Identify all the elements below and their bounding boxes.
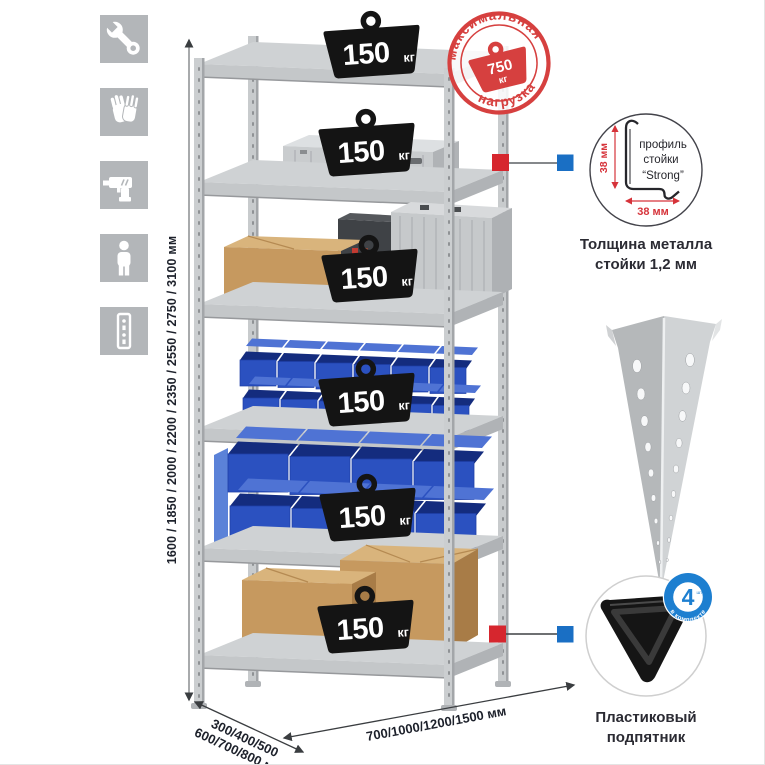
rack-illustration: 1600 / 1850 / 2000 / 2200 / 2350 / 2550 … — [0, 0, 765, 765]
svg-text:150: 150 — [340, 261, 389, 296]
callout-red-marker — [489, 626, 506, 643]
svg-text:кг: кг — [399, 513, 411, 528]
svg-text:штуки: штуки — [697, 590, 710, 595]
svg-text:кг: кг — [398, 398, 410, 413]
width-label: 700/1000/1200/1500 мм — [365, 703, 507, 744]
profile-caption: Толщина металла стойки 1,2 мм — [551, 235, 741, 275]
svg-text:кг: кг — [403, 50, 415, 65]
svg-text:150: 150 — [342, 37, 391, 72]
callout-red-marker — [492, 154, 509, 171]
svg-text:профиль: профиль — [639, 139, 687, 151]
svg-text:кг: кг — [398, 148, 410, 163]
svg-text:150: 150 — [337, 135, 386, 170]
post-profile-detail: 38 мм 38 мм профиль стойки “Strong” — [590, 114, 702, 226]
corner-post-figure — [606, 316, 722, 592]
svg-text:4: 4 — [682, 584, 695, 610]
weight-badge-icon: 150 кг — [322, 10, 422, 79]
svg-text:“Strong”: “Strong” — [642, 170, 684, 182]
foot-callout — [489, 626, 574, 643]
height-dimension: 1600 / 1850 / 2000 / 2200 / 2350 / 2550 … — [165, 40, 189, 700]
plastic-foot-detail: 4 штуки в комплекте — [586, 572, 713, 696]
weight-badge-icon: 150 кг — [317, 108, 417, 177]
profile-callout — [492, 154, 574, 171]
height-label: 1600 / 1850 / 2000 / 2200 / 2350 / 2550 … — [165, 236, 179, 565]
svg-text:150: 150 — [336, 612, 385, 647]
svg-text:стойки: стойки — [643, 154, 678, 166]
width-dimension: 700/1000/1200/1500 мм — [284, 685, 574, 744]
shelving-infographic: 1600 / 1850 / 2000 / 2200 / 2350 / 2550 … — [0, 0, 765, 765]
svg-text:кг: кг — [401, 274, 413, 289]
profile-horizontal-dim: 38 мм — [637, 206, 669, 218]
depth-dimension: 300/400/500 600/700/800 мм — [192, 702, 303, 765]
svg-text:150: 150 — [338, 500, 387, 535]
foot-caption: Пластиковый подпятник — [551, 708, 741, 748]
callout-blue-marker — [557, 626, 574, 643]
callout-blue-marker — [557, 155, 574, 172]
svg-text:150: 150 — [337, 385, 386, 420]
profile-vertical-dim: 38 мм — [598, 143, 610, 173]
svg-text:кг: кг — [397, 625, 409, 640]
